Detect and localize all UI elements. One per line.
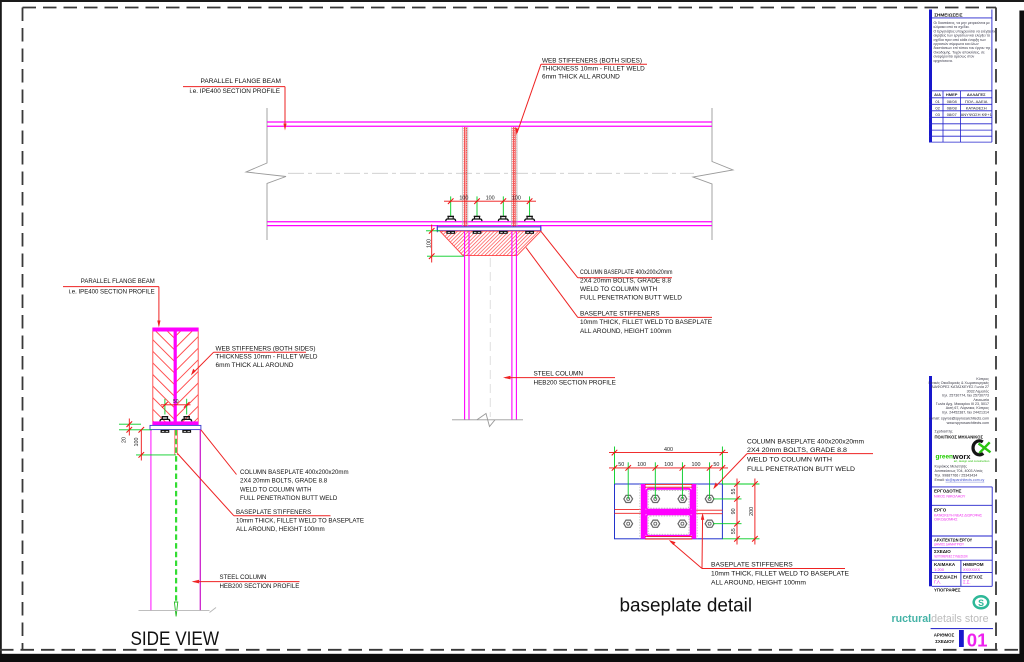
svg-text:Σ.Σ.: Σ.Σ. — [963, 579, 971, 584]
svg-text:art, design and construction: art, design and construction — [954, 459, 990, 463]
svg-text:2X4 20mm BOLTS, GRADE 8.8: 2X4 20mm BOLTS, GRADE 8.8 — [240, 478, 328, 485]
svg-text:ΝΙΚΟΣ ΝΙΚΟΛΑΟΥ: ΝΙΚΟΣ ΝΙΚΟΛΑΟΥ — [934, 494, 966, 499]
svg-text:10mm THICK, FILLET WELD TO BAS: 10mm THICK, FILLET WELD TO BASEPLATE — [580, 319, 712, 326]
svg-text:Email: sk@sparchitects.com.cy: Email: sk@sparchitects.com.cy — [935, 478, 985, 482]
svg-text:03: 03 — [935, 112, 940, 117]
svg-text:ΛΕΠΤΟΜΕΡΕΙΕΣ ΣΥΝΔΕΣΕΩΝ: ΛΕΠΤΟΜΕΡΕΙΕΣ ΣΥΝΔΕΣΕΩΝ — [934, 554, 967, 559]
svg-text:PARALLEL FLANGE BEAM: PARALLEL FLANGE BEAM — [81, 278, 155, 285]
svg-text:i.e. IPE400 SECTION PROFILE: i.e. IPE400 SECTION PROFILE — [190, 88, 281, 95]
svg-text:WEB STIFFENERS (BOTH SIDES): WEB STIFFENERS (BOTH SIDES) — [542, 57, 642, 64]
svg-text:100: 100 — [486, 195, 495, 201]
svg-text:S: S — [978, 598, 984, 608]
svg-text:WEB STIFFENERS (BOTH SIDES): WEB STIFFENERS (BOTH SIDES) — [216, 345, 316, 352]
svg-text:100: 100 — [692, 462, 701, 468]
svg-text:08/08: 08/08 — [947, 99, 958, 104]
svg-text:αρχιτέκτονα.: αρχιτέκτονα. — [934, 59, 953, 63]
svg-text:ΕΡΓΟΔΟΤΗΣ: ΕΡΓΟΔΟΤΗΣ — [934, 488, 962, 493]
svg-text:100: 100 — [664, 462, 673, 468]
svg-text:FULL PENETRATION BUTT WELD: FULL PENETRATION BUTT WELD — [580, 295, 682, 302]
svg-text:ALL AROUND, HEIGHT 100mm: ALL AROUND, HEIGHT 100mm — [236, 526, 325, 533]
svg-text:08/07: 08/07 — [947, 112, 958, 117]
svg-text:THICKNESS 10mm - FILLET WELD: THICKNESS 10mm - FILLET WELD — [542, 66, 645, 73]
svg-text:HEB200 SECTION PROFILE: HEB200 SECTION PROFILE — [534, 379, 616, 386]
svg-text:BASEPLATE STIFFENERS: BASEPLATE STIFFENERS — [711, 561, 793, 568]
svg-text:02: 02 — [935, 105, 940, 110]
svg-text:Α/Α: Α/Α — [934, 92, 941, 97]
svg-text:HEB200 SECTION PROFILE: HEB200 SECTION PROFILE — [220, 583, 300, 590]
svg-text:WELD TO COLUMN WITH: WELD TO COLUMN WITH — [580, 286, 657, 293]
svg-text:55: 55 — [731, 489, 737, 495]
svg-text:ΑΡΙΘΜΟΣ: ΑΡΙΘΜΟΣ — [934, 633, 955, 638]
svg-text:1:200: 1:200 — [934, 567, 945, 572]
svg-text:ΠΟΛ. ΑΔΕΙΑ: ΠΟΛ. ΑΔΕΙΑ — [965, 99, 988, 104]
svg-text:PARALLEL FLANGE BEAM: PARALLEL FLANGE BEAM — [201, 78, 281, 85]
svg-text:COLUMN BASEPLATE 400x200x20mm: COLUMN BASEPLATE 400x200x20mm — [240, 469, 349, 476]
svg-text:ΧΧ/ΧΧ/ΧΧ: ΧΧ/ΧΧ/ΧΧ — [963, 567, 980, 572]
svg-text:6mm THICK ALL AROUND: 6mm THICK ALL AROUND — [216, 362, 295, 369]
svg-text:100: 100 — [637, 462, 646, 468]
svg-text:200: 200 — [749, 507, 755, 516]
svg-text:BASEPLATE STIFFENERS: BASEPLATE STIFFENERS — [236, 509, 311, 516]
svg-text:100: 100 — [134, 438, 140, 447]
svg-text:50: 50 — [618, 462, 624, 468]
svg-text:ΟΙΚΟΔΟΜΗΣ: ΟΙΚΟΔΟΜΗΣ — [934, 516, 958, 521]
svg-text:τηλ. 24452387, fax 24421314: τηλ. 24452387, fax 24421314 — [942, 410, 989, 414]
svg-text:10mm THICK, FILLET WELD TO BAS: 10mm THICK, FILLET WELD TO BASEPLATE — [711, 570, 849, 577]
svg-text:STEEL COLUMN: STEEL COLUMN — [220, 574, 267, 581]
svg-text:ΑΝΥΨΩΣΗ ΚΦ+1: ΑΝΥΨΩΣΗ ΚΦ+1 — [961, 112, 993, 117]
svg-text:STEEL COLUMN: STEEL COLUMN — [534, 371, 584, 378]
svg-text:ΣΧΕΔΙΟΥ: ΣΧΕΔΙΟΥ — [935, 639, 954, 644]
svg-text:08/08: 08/08 — [947, 105, 958, 110]
svg-text:Τηλ. 99887766 / 25343434: Τηλ. 99887766 / 25343434 — [935, 473, 978, 477]
svg-text:100: 100 — [426, 239, 432, 248]
svg-text:90: 90 — [731, 508, 737, 514]
svg-text:Αναπαύσεως 704, 4003 Λ/σός: Αναπαύσεως 704, 4003 Λ/σός — [935, 469, 983, 473]
svg-text:Σχεδιαστής: Σχεδιαστής — [935, 430, 953, 434]
svg-text:2X4 20mm BOLTS, GRADE 8.8: 2X4 20mm BOLTS, GRADE 8.8 — [580, 277, 672, 284]
svg-text:WELD TO COLUMN WITH: WELD TO COLUMN WITH — [747, 457, 832, 464]
svg-text:400: 400 — [664, 447, 673, 453]
svg-text:ΣΗΜΕΙΩΣΕΙΣ: ΣΗΜΕΙΩΣΕΙΣ — [934, 12, 963, 17]
svg-text:FULL PENETRATION BUTT WELD: FULL PENETRATION BUTT WELD — [240, 495, 338, 502]
svg-text:50: 50 — [173, 399, 179, 405]
svg-text:100: 100 — [512, 195, 521, 201]
svg-text:e-mail: spyros@spyrosarchitec: e-mail: spyros@spyrosarchitects.com — [929, 417, 989, 421]
svg-text:ΑΛΛΑΓΕΣ: ΑΛΛΑΓΕΣ — [967, 92, 986, 97]
svg-text:ALL AROUND, HEIGHT 100mm: ALL AROUND, HEIGHT 100mm — [711, 579, 806, 586]
svg-text:baseplate detail: baseplate detail — [620, 596, 753, 617]
svg-text:ΥΠΟΓΡΑΦΕΣ: ΥΠΟΓΡΑΦΕΣ — [934, 588, 961, 593]
svg-text:COLUMN BASEPLATE 400x200x20mm: COLUMN BASEPLATE 400x200x20mm — [747, 438, 864, 445]
svg-text:i.e. IPE400 SECTION PROFILE: i.e. IPE400 SECTION PROFILE — [69, 288, 155, 295]
svg-text:10mm THICK, FILLET WELD TO BAS: 10mm THICK, FILLET WELD TO BASEPLATE — [236, 518, 364, 525]
svg-text:WELD TO COLUMN WITH: WELD TO COLUMN WITH — [240, 486, 311, 493]
svg-text:ΗΜΕΡ: ΗΜΕΡ — [946, 92, 958, 97]
svg-text:Κυριάκος Μελετητής: Κυριάκος Μελετητής — [935, 464, 968, 468]
svg-text:2X4 20mm BOLTS, GRADE 8.8: 2X4 20mm BOLTS, GRADE 8.8 — [747, 447, 848, 454]
svg-text:COLUMN BASEPLATE 400x200x20mm: COLUMN BASEPLATE 400x200x20mm — [580, 269, 673, 276]
svg-text:ALL AROUND, HEIGHT 100mm: ALL AROUND, HEIGHT 100mm — [580, 328, 672, 335]
svg-text:50: 50 — [713, 462, 719, 468]
svg-text:100: 100 — [459, 195, 468, 201]
svg-text:55: 55 — [731, 528, 737, 534]
svg-text:ructuraldetails store: ructuraldetails store — [892, 613, 989, 625]
svg-text:01: 01 — [967, 629, 988, 650]
svg-text:www.spyrosarchitects.com: www.spyrosarchitects.com — [947, 421, 989, 425]
svg-text:20: 20 — [122, 437, 128, 443]
svg-text:green: green — [936, 454, 953, 461]
svg-text:SIDE VIEW: SIDE VIEW — [131, 629, 220, 650]
svg-text:ΚΑΤΑΘΕΣΗ: ΚΑΤΑΘΕΣΗ — [966, 105, 987, 110]
svg-text:01: 01 — [935, 99, 940, 104]
svg-text:ΔΗΜΟΣ ΔΗΜΗΤΡΙΟΥ: ΔΗΜΟΣ ΔΗΜΗΤΡΙΟΥ — [934, 542, 964, 547]
svg-text:ΠΟΛΙΤΙΚΟΣ ΜΗΧΑΝΙΚΟΣ: ΠΟΛΙΤΙΚΟΣ ΜΗΧΑΝΙΚΟΣ — [935, 434, 984, 440]
svg-text:6mm THICK ALL AROUND: 6mm THICK ALL AROUND — [542, 74, 620, 81]
svg-text:FULL PENETRATION BUTT WELD: FULL PENETRATION BUTT WELD — [747, 466, 856, 473]
svg-text:THICKNESS 10mm - FILLET WELD: THICKNESS 10mm - FILLET WELD — [216, 354, 319, 361]
svg-text:Γ.Λ.: Γ.Λ. — [934, 579, 941, 584]
svg-text:BASEPLATE STIFFENERS: BASEPLATE STIFFENERS — [580, 311, 660, 318]
